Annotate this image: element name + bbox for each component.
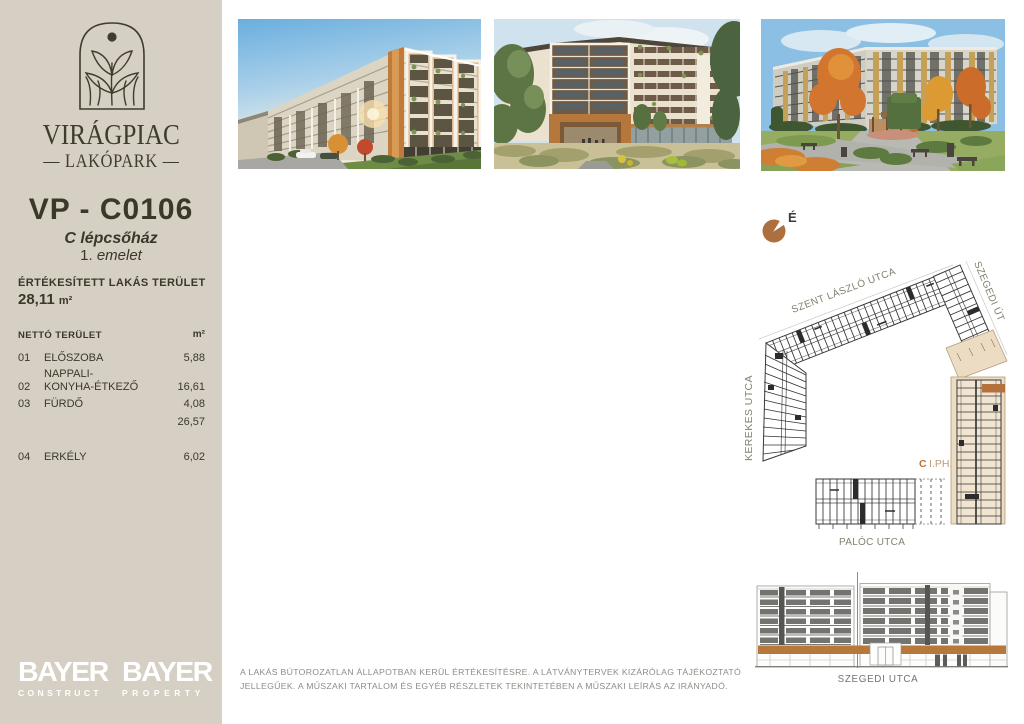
svg-text:É: É <box>788 210 797 225</box>
svg-text:C: C <box>919 458 927 470</box>
svg-text:I.PH.: I.PH. <box>929 458 952 470</box>
svg-text:PALÓC UTCA: PALÓC UTCA <box>839 535 905 548</box>
svg-text:KEREKES UTCA: KEREKES UTCA <box>743 375 755 461</box>
